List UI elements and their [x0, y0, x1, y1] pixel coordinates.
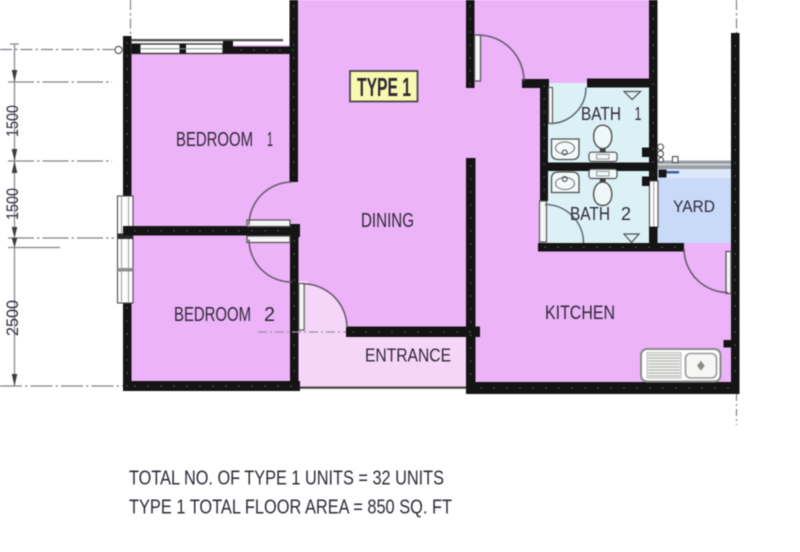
svg-text:YARD: YARD [673, 197, 715, 216]
svg-text:DINING: DINING [361, 210, 414, 232]
svg-text:1500: 1500 [3, 188, 22, 220]
svg-text:2: 2 [621, 204, 631, 224]
svg-text:BEDROOM: BEDROOM [176, 129, 253, 151]
svg-text:TYPE 1: TYPE 1 [357, 72, 411, 102]
svg-text:TYPE 1 TOTAL FLOOR AREA = 850: TYPE 1 TOTAL FLOOR AREA = 850 SQ. FT [129, 497, 452, 519]
svg-text:BEDROOM: BEDROOM [174, 304, 251, 326]
svg-text:2500: 2500 [3, 300, 22, 336]
svg-text:BATH: BATH [570, 204, 610, 224]
svg-text:1500: 1500 [3, 105, 22, 137]
svg-text:1: 1 [635, 104, 642, 124]
svg-text:1: 1 [267, 129, 273, 151]
svg-text:BATH: BATH [581, 104, 621, 124]
svg-text:2: 2 [264, 304, 275, 326]
svg-text:ENTRANCE: ENTRANCE [365, 346, 451, 366]
svg-text:KITCHEN: KITCHEN [545, 303, 615, 324]
svg-text:TOTAL NO. OF TYPE 1 UNITS = 32: TOTAL NO. OF TYPE 1 UNITS = 32 UNITS [129, 468, 444, 490]
